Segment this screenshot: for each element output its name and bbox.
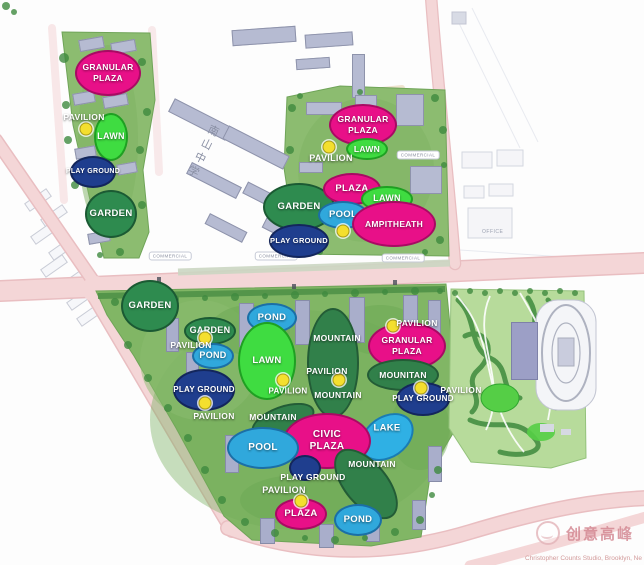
zone-playground: PLAY GROUND bbox=[70, 156, 116, 188]
tree bbox=[527, 288, 533, 294]
zone-pool: POOL bbox=[227, 427, 299, 469]
zone-label: PLAY GROUND bbox=[270, 236, 328, 245]
tree bbox=[271, 529, 279, 537]
label-pavilion: PAVILION bbox=[440, 385, 481, 395]
watermark-brand: 创意高峰 bbox=[566, 523, 634, 544]
zone-label: GARDEN bbox=[129, 300, 172, 312]
tree bbox=[362, 535, 368, 541]
tree bbox=[382, 289, 388, 295]
tree bbox=[482, 290, 488, 296]
zone-label: POND bbox=[199, 350, 226, 361]
commercial-tag: COMMERCIAL bbox=[382, 254, 425, 263]
building bbox=[412, 500, 426, 530]
zone-label: PLAY GROUND bbox=[392, 394, 454, 404]
tree bbox=[124, 341, 132, 349]
label-pavilion: PAVILION bbox=[170, 340, 211, 350]
label-pavilion: PAVILION bbox=[262, 485, 306, 495]
tree bbox=[434, 466, 442, 474]
tree bbox=[143, 108, 151, 116]
tree bbox=[138, 201, 146, 209]
pavilion-marker-dot bbox=[323, 141, 336, 154]
tree bbox=[218, 496, 226, 504]
tree bbox=[357, 89, 363, 95]
label-pavilion: PAVILION bbox=[269, 387, 308, 396]
tree bbox=[351, 289, 359, 297]
zone-plaza: GRANULARPLAZA bbox=[75, 50, 141, 96]
building bbox=[296, 57, 331, 70]
watermark-logo-icon bbox=[536, 521, 560, 545]
zone-garden: GARDEN bbox=[121, 280, 179, 332]
zone-label: LAWN bbox=[97, 131, 125, 142]
label-mountain: MOUNTAIN bbox=[249, 412, 297, 422]
credit-line: Christopher Counts Studio, Brooklyn, Ne bbox=[525, 555, 642, 562]
building bbox=[410, 166, 442, 194]
tree bbox=[184, 434, 192, 442]
tree bbox=[231, 293, 239, 301]
tree bbox=[497, 288, 503, 294]
label-lake: LAKE bbox=[373, 423, 400, 434]
tree bbox=[59, 53, 69, 63]
tree bbox=[391, 528, 399, 536]
zone-label: POND bbox=[344, 514, 373, 526]
zone-label: PLAZA bbox=[284, 508, 317, 520]
office-label: OFFICE bbox=[482, 229, 503, 235]
tree bbox=[286, 146, 294, 154]
tree bbox=[201, 466, 209, 474]
zone-label: LAWN bbox=[252, 355, 281, 367]
road-name-glyph bbox=[292, 284, 296, 289]
tree bbox=[64, 136, 72, 144]
tree bbox=[441, 162, 447, 168]
building bbox=[428, 446, 442, 482]
tree bbox=[436, 236, 444, 244]
pavilion-marker-dot bbox=[80, 123, 93, 136]
road-name-glyph bbox=[393, 280, 397, 285]
tree bbox=[111, 298, 119, 306]
building bbox=[299, 162, 323, 173]
label-mountain: MOUNTAIN bbox=[313, 333, 361, 343]
tree bbox=[572, 290, 578, 296]
tree bbox=[437, 288, 443, 294]
zone-playground: PLAY GROUND bbox=[269, 224, 329, 258]
tree bbox=[467, 288, 473, 294]
zone-label: POOL bbox=[248, 442, 278, 455]
building bbox=[396, 94, 424, 126]
commercial-tag: COMMERCIAL bbox=[149, 252, 192, 261]
building bbox=[511, 322, 538, 380]
tree bbox=[331, 536, 339, 544]
zone-label: MOUNITAN bbox=[379, 370, 427, 381]
pavilion-marker-dot bbox=[295, 495, 308, 508]
label-pavilion: PAVILION bbox=[63, 112, 104, 122]
label-play-ground: PLAY GROUND bbox=[280, 472, 345, 482]
tree bbox=[241, 518, 249, 526]
tree bbox=[542, 290, 548, 296]
tree bbox=[202, 295, 208, 301]
label-pavilion: PAVILION bbox=[309, 153, 353, 163]
zone-label: GRANULAR bbox=[337, 114, 388, 125]
zone-label: PLAZA bbox=[348, 125, 378, 136]
tree bbox=[297, 93, 303, 99]
tree bbox=[136, 146, 144, 154]
zone-label: GARDEN bbox=[90, 208, 133, 220]
label-mountain: MOUNTAIN bbox=[348, 459, 396, 469]
tree bbox=[452, 290, 458, 296]
label-pavilion: PAVILION bbox=[306, 366, 347, 376]
tree bbox=[302, 535, 308, 541]
tree bbox=[164, 404, 172, 412]
zone-label: LAWN bbox=[354, 144, 380, 155]
commercial-tag: COMMERCIAL bbox=[397, 151, 440, 160]
zone-garden: GARDEN bbox=[85, 190, 137, 238]
watermark: 创意高峰 bbox=[536, 521, 634, 545]
zone-label: PLAZA bbox=[392, 346, 422, 357]
zone-mountain bbox=[307, 308, 359, 418]
zone-label: GRANULAR bbox=[381, 335, 432, 346]
pavilion-marker-dot bbox=[415, 382, 428, 395]
tree bbox=[416, 516, 424, 524]
tree bbox=[512, 290, 518, 296]
tree bbox=[291, 291, 299, 299]
tree bbox=[411, 287, 419, 295]
tree bbox=[11, 9, 17, 15]
tree bbox=[322, 291, 328, 297]
label-mountain: MOUNTAIN bbox=[314, 390, 362, 400]
tree bbox=[262, 293, 268, 299]
zone-label: PLAY GROUND bbox=[173, 385, 235, 395]
tree bbox=[2, 2, 10, 10]
zone-label: CIVIC bbox=[313, 429, 341, 442]
tree bbox=[97, 252, 103, 258]
masterplan-map: 南山中学 OFFICE GRANULARPLAZALAWNPLAY GROUND… bbox=[0, 0, 644, 565]
tree bbox=[557, 288, 563, 294]
pavilion-marker-dot bbox=[199, 397, 212, 410]
tree bbox=[431, 94, 439, 102]
tree bbox=[62, 101, 70, 109]
building bbox=[295, 300, 310, 345]
zone-label: GARDEN bbox=[278, 201, 321, 213]
zone-pond: POND bbox=[334, 504, 382, 536]
zone-label: PLAZA bbox=[93, 73, 123, 84]
tree bbox=[144, 374, 152, 382]
tree bbox=[439, 126, 447, 134]
tree bbox=[116, 248, 124, 256]
pavilion-marker-dot bbox=[277, 374, 290, 387]
zone-label: PLAY GROUND bbox=[66, 168, 120, 177]
zone-label: AMPITHEATH bbox=[365, 219, 423, 230]
pavilion-marker-dot bbox=[337, 225, 350, 238]
label-pavilion: PAVILION bbox=[193, 411, 234, 421]
tree bbox=[288, 104, 296, 112]
tree bbox=[429, 492, 435, 498]
label-pavilion: PAVILION bbox=[396, 318, 437, 328]
zone-plaza: AMPITHEATH bbox=[352, 201, 436, 247]
zone-label: GRANULAR bbox=[82, 62, 133, 73]
